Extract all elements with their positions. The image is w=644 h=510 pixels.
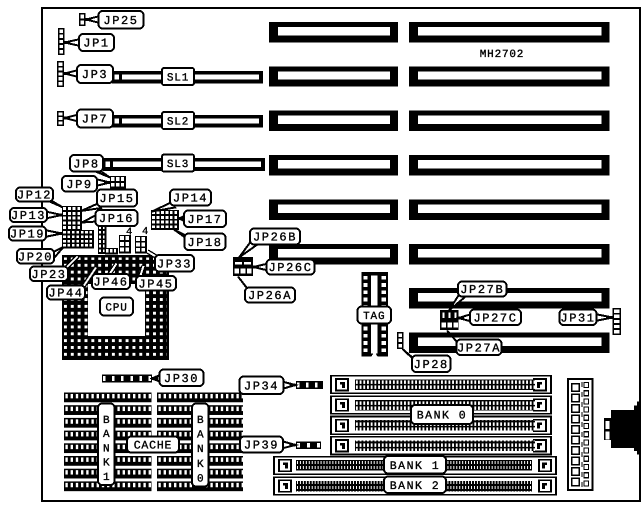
svg-text:JP7: JP7	[82, 113, 108, 127]
svg-text:SL1: SL1	[167, 73, 189, 85]
svg-text:JP34: JP34	[244, 379, 279, 393]
svg-text:K: K	[103, 458, 110, 470]
svg-text:JP27A: JP27A	[457, 341, 501, 355]
svg-text:B: B	[103, 415, 110, 427]
svg-text:N: N	[103, 443, 110, 455]
svg-text:B: B	[197, 415, 204, 427]
svg-text:BANK 1: BANK 1	[390, 460, 440, 473]
svg-text:A: A	[103, 429, 110, 441]
svg-text:K: K	[197, 459, 204, 471]
svg-text:JP14: JP14	[173, 192, 208, 206]
svg-text:JP31: JP31	[560, 311, 595, 325]
svg-text:JP15: JP15	[99, 192, 134, 206]
svg-text:SL3: SL3	[167, 159, 189, 171]
svg-text:JP46: JP46	[93, 276, 128, 290]
svg-text:JP27B: JP27B	[460, 283, 504, 297]
svg-text:JP9: JP9	[66, 178, 92, 192]
svg-text:JP18: JP18	[187, 236, 222, 250]
svg-text:JP8: JP8	[73, 157, 99, 171]
svg-text:BANK 0: BANK 0	[417, 410, 467, 423]
svg-text:JP13: JP13	[11, 209, 46, 223]
svg-text:JP25: JP25	[103, 14, 138, 28]
svg-text:JP3: JP3	[82, 68, 108, 82]
svg-text:JP16: JP16	[99, 212, 134, 226]
svg-text:JP39: JP39	[244, 439, 279, 453]
svg-text:A: A	[197, 430, 204, 442]
svg-text:JP26B: JP26B	[253, 231, 297, 245]
svg-text:JP12: JP12	[17, 189, 52, 203]
svg-text:JP20: JP20	[18, 250, 53, 264]
svg-text:MH2702: MH2702	[480, 49, 524, 61]
svg-text:JP44: JP44	[48, 287, 83, 301]
svg-text:JP45: JP45	[138, 277, 173, 291]
svg-text:JP27C: JP27C	[473, 311, 517, 325]
svg-text:JP26A: JP26A	[248, 289, 292, 303]
svg-text:JP17: JP17	[187, 213, 222, 227]
svg-text:JP26C: JP26C	[268, 261, 312, 275]
svg-text:JP19: JP19	[10, 228, 45, 242]
svg-text:CACHE: CACHE	[134, 440, 173, 453]
svg-text:JP33: JP33	[157, 257, 192, 271]
svg-text:1: 1	[103, 472, 110, 484]
svg-text:TAG: TAG	[363, 311, 385, 323]
svg-text:N: N	[197, 444, 204, 456]
svg-text:CPU: CPU	[105, 303, 127, 315]
svg-text:SL2: SL2	[167, 117, 189, 129]
svg-text:0: 0	[197, 473, 204, 485]
svg-text:JP30: JP30	[164, 372, 199, 386]
svg-text:JP23: JP23	[31, 268, 66, 282]
svg-text:BANK 2: BANK 2	[390, 480, 440, 493]
svg-text:JP1: JP1	[83, 37, 109, 51]
svg-text:JP28: JP28	[414, 358, 449, 372]
